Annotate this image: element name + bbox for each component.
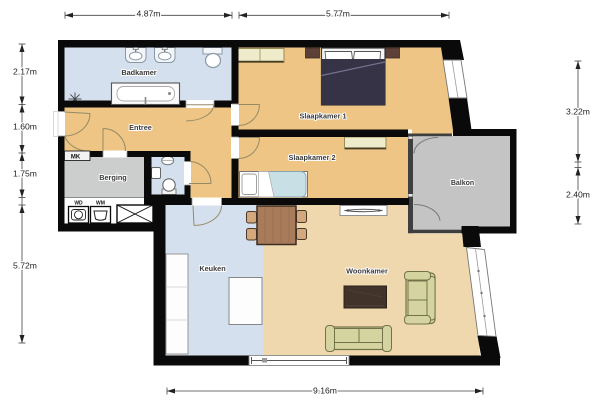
svg-text:Slaapkamer 2: Slaapkamer 2	[288, 153, 335, 162]
svg-text:Balkon: Balkon	[451, 180, 474, 187]
svg-text:9.16m: 9.16m	[313, 386, 337, 396]
svg-text:Keuken: Keuken	[199, 264, 225, 273]
svg-text:Berging: Berging	[99, 173, 127, 182]
svg-text:MK: MK	[71, 154, 81, 160]
svg-text:Woonkamer: Woonkamer	[346, 267, 388, 276]
svg-text:5.72m: 5.72m	[13, 261, 37, 271]
svg-text:2.17m: 2.17m	[13, 67, 37, 77]
svg-text:4.87m: 4.87m	[137, 9, 161, 19]
svg-text:Badkamer: Badkamer	[121, 68, 156, 77]
svg-text:1.75m: 1.75m	[13, 169, 37, 179]
svg-text:Slaapkamer 1: Slaapkamer 1	[299, 112, 346, 121]
svg-text:Entree: Entree	[129, 123, 152, 132]
svg-text:3.22m: 3.22m	[566, 107, 590, 117]
svg-text:WD: WD	[74, 200, 83, 206]
svg-text:5.77m: 5.77m	[326, 9, 350, 19]
svg-text:1.60m: 1.60m	[13, 122, 37, 132]
svg-text:2.40m: 2.40m	[566, 190, 590, 200]
svg-text:WM: WM	[96, 200, 105, 206]
